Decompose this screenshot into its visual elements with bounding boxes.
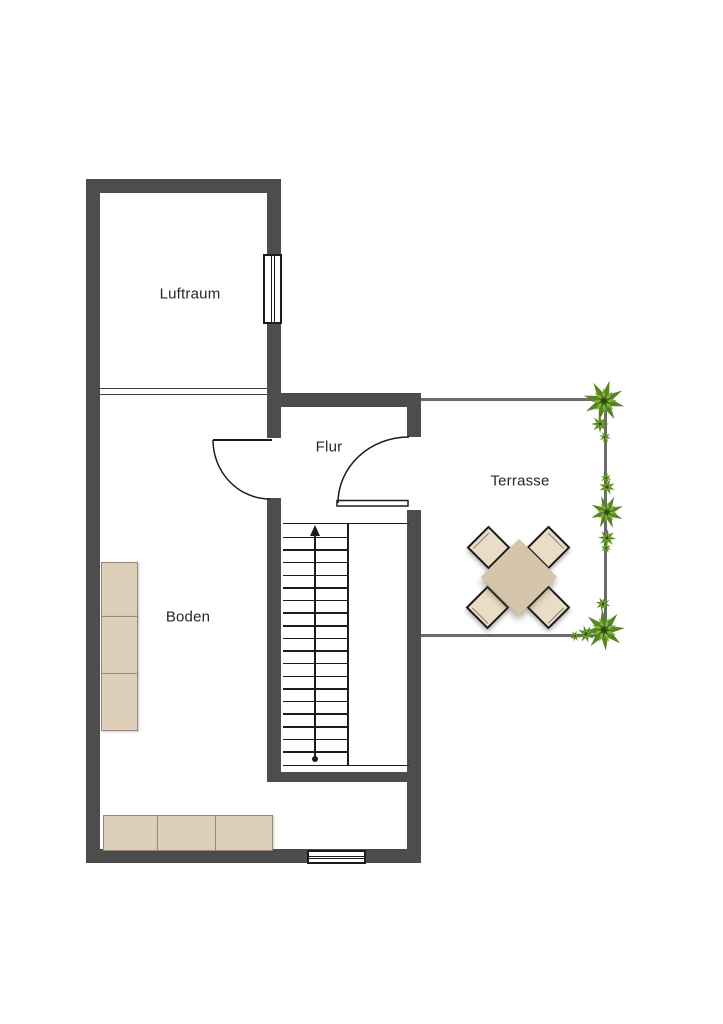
boden-window (307, 850, 366, 864)
floor-plan: Luftraum Flur Boden Terrasse (0, 0, 723, 1024)
room-label-boden: Boden (166, 609, 210, 626)
stair-arrow-head-icon (310, 525, 320, 536)
door-flur-terrasse (337, 437, 409, 506)
stair-direction-arrow (314, 531, 316, 758)
terrace-edge-right (604, 398, 607, 637)
terrace-edge-bottom (421, 634, 607, 637)
boden-cabinet-left-1 (101, 562, 138, 617)
wall-right-stub (407, 393, 421, 437)
room-label-flur: Flur (316, 439, 343, 456)
stair-divider-line (347, 524, 349, 765)
terrace-edge-top (421, 398, 607, 401)
boden-cabinet-left-2 (101, 616, 138, 674)
room-label-luftraum: Luftraum (160, 286, 221, 303)
wall-stairwell-bottom (267, 772, 421, 782)
wall-left (86, 179, 100, 863)
room-label-terrasse: Terrasse (490, 473, 549, 490)
boden-cabinet-left-3 (101, 673, 138, 731)
stair-arrow-start-dot (312, 756, 318, 762)
boden-cabinet-bottom-3 (215, 815, 273, 851)
door-swing-arc (213, 440, 270, 499)
wall-right-main (407, 510, 421, 863)
plan-vector-overlay (0, 0, 723, 1024)
wall-top (86, 179, 281, 193)
wall-flur-top (267, 393, 421, 407)
terrace-plant-middle (583, 471, 631, 555)
door-boden-flur (213, 440, 272, 499)
luftraum-window (263, 254, 282, 324)
wall-stairwell-left (267, 498, 281, 782)
staircase (283, 523, 409, 766)
boden-cabinet-bottom-1 (103, 815, 158, 851)
wall-bottom (86, 849, 421, 863)
door-leaf (337, 501, 408, 507)
boden-cabinet-bottom-2 (157, 815, 216, 851)
luftraum-open-edge (100, 388, 267, 395)
door-swing-arc (338, 437, 409, 503)
